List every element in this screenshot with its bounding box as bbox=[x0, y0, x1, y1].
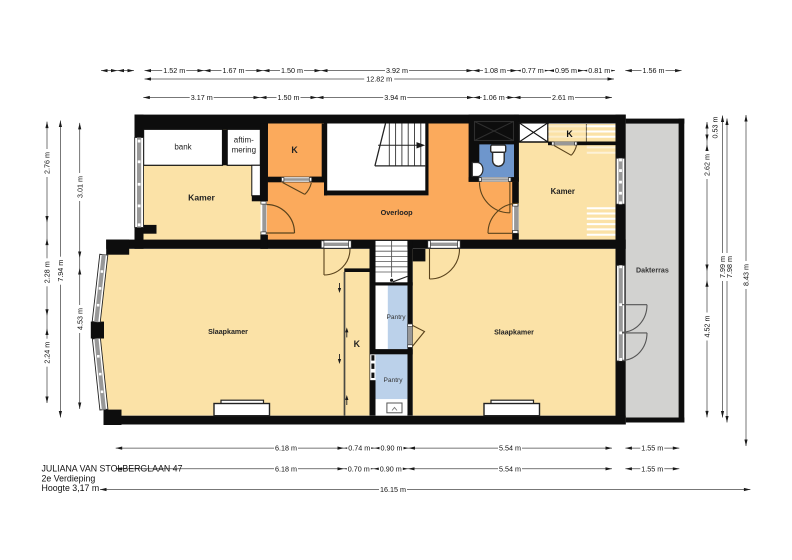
svg-text:0.77 m: 0.77 m bbox=[522, 66, 544, 75]
svg-text:3.17 m: 3.17 m bbox=[191, 93, 213, 102]
svg-text:0.74 m: 0.74 m bbox=[348, 444, 370, 453]
svg-text:5.54 m: 5.54 m bbox=[499, 444, 521, 453]
svg-text:1.50 m: 1.50 m bbox=[281, 66, 303, 75]
svg-text:aftim-: aftim- bbox=[234, 136, 254, 145]
svg-text:1.55 m: 1.55 m bbox=[641, 444, 663, 453]
svg-text:0.95 m: 0.95 m bbox=[555, 66, 577, 75]
svg-text:7.94 m: 7.94 m bbox=[56, 260, 65, 282]
svg-text:16.15 m: 16.15 m bbox=[380, 485, 406, 494]
svg-text:2.24 m: 2.24 m bbox=[43, 342, 52, 364]
svg-text:K: K bbox=[291, 145, 298, 155]
svg-text:Overloop: Overloop bbox=[381, 208, 414, 217]
svg-text:7.98 m: 7.98 m bbox=[725, 256, 734, 278]
svg-text:K: K bbox=[354, 339, 361, 349]
svg-text:4.52 m: 4.52 m bbox=[703, 316, 712, 338]
svg-text:Kamer: Kamer bbox=[188, 193, 215, 203]
svg-text:2.28 m: 2.28 m bbox=[43, 261, 52, 283]
svg-text:1.06 m: 1.06 m bbox=[483, 93, 505, 102]
svg-text:3.94 m: 3.94 m bbox=[384, 93, 406, 102]
svg-text:1.67 m: 1.67 m bbox=[223, 66, 245, 75]
svg-text:4.53 m: 4.53 m bbox=[75, 308, 84, 330]
svg-text:JULIANA VAN STOLBERGLAAN 47: JULIANA VAN STOLBERGLAAN 47 bbox=[42, 463, 183, 473]
svg-text:6.18 m: 6.18 m bbox=[275, 464, 297, 473]
svg-text:Dakterras: Dakterras bbox=[636, 266, 669, 274]
svg-text:0.90 m: 0.90 m bbox=[381, 444, 403, 453]
svg-text:Slaapkamer: Slaapkamer bbox=[494, 329, 534, 337]
svg-text:bank: bank bbox=[174, 143, 192, 152]
svg-text:6.18 m: 6.18 m bbox=[275, 444, 297, 453]
svg-text:5.54 m: 5.54 m bbox=[499, 464, 521, 473]
svg-text:Hoogte 3,17 m: Hoogte 3,17 m bbox=[42, 483, 100, 493]
svg-text:0.81 m: 0.81 m bbox=[588, 66, 610, 75]
svg-text:0.53 m: 0.53 m bbox=[710, 117, 719, 139]
svg-text:Slaapkamer: Slaapkamer bbox=[208, 328, 248, 336]
svg-text:K: K bbox=[566, 129, 573, 139]
svg-text:Kamer: Kamer bbox=[551, 187, 575, 196]
svg-text:0.90 m: 0.90 m bbox=[380, 464, 402, 473]
svg-text:1.56 m: 1.56 m bbox=[643, 66, 665, 75]
svg-text:2.62 m: 2.62 m bbox=[703, 154, 712, 176]
svg-text:mering: mering bbox=[232, 146, 256, 155]
svg-text:1.55 m: 1.55 m bbox=[641, 464, 663, 473]
svg-text:8.43 m: 8.43 m bbox=[742, 264, 751, 286]
svg-text:0.70 m: 0.70 m bbox=[348, 464, 370, 473]
svg-text:1.52 m: 1.52 m bbox=[163, 66, 185, 75]
svg-text:2.76 m: 2.76 m bbox=[43, 152, 52, 174]
svg-text:1.50 m: 1.50 m bbox=[278, 93, 300, 102]
svg-text:12.82 m: 12.82 m bbox=[366, 75, 392, 84]
svg-text:Pantry: Pantry bbox=[383, 377, 403, 384]
svg-text:Pantry: Pantry bbox=[386, 314, 406, 321]
svg-text:3.01 m: 3.01 m bbox=[75, 176, 84, 198]
svg-text:2.61 m: 2.61 m bbox=[552, 93, 574, 102]
svg-text:1.08 m: 1.08 m bbox=[484, 66, 506, 75]
